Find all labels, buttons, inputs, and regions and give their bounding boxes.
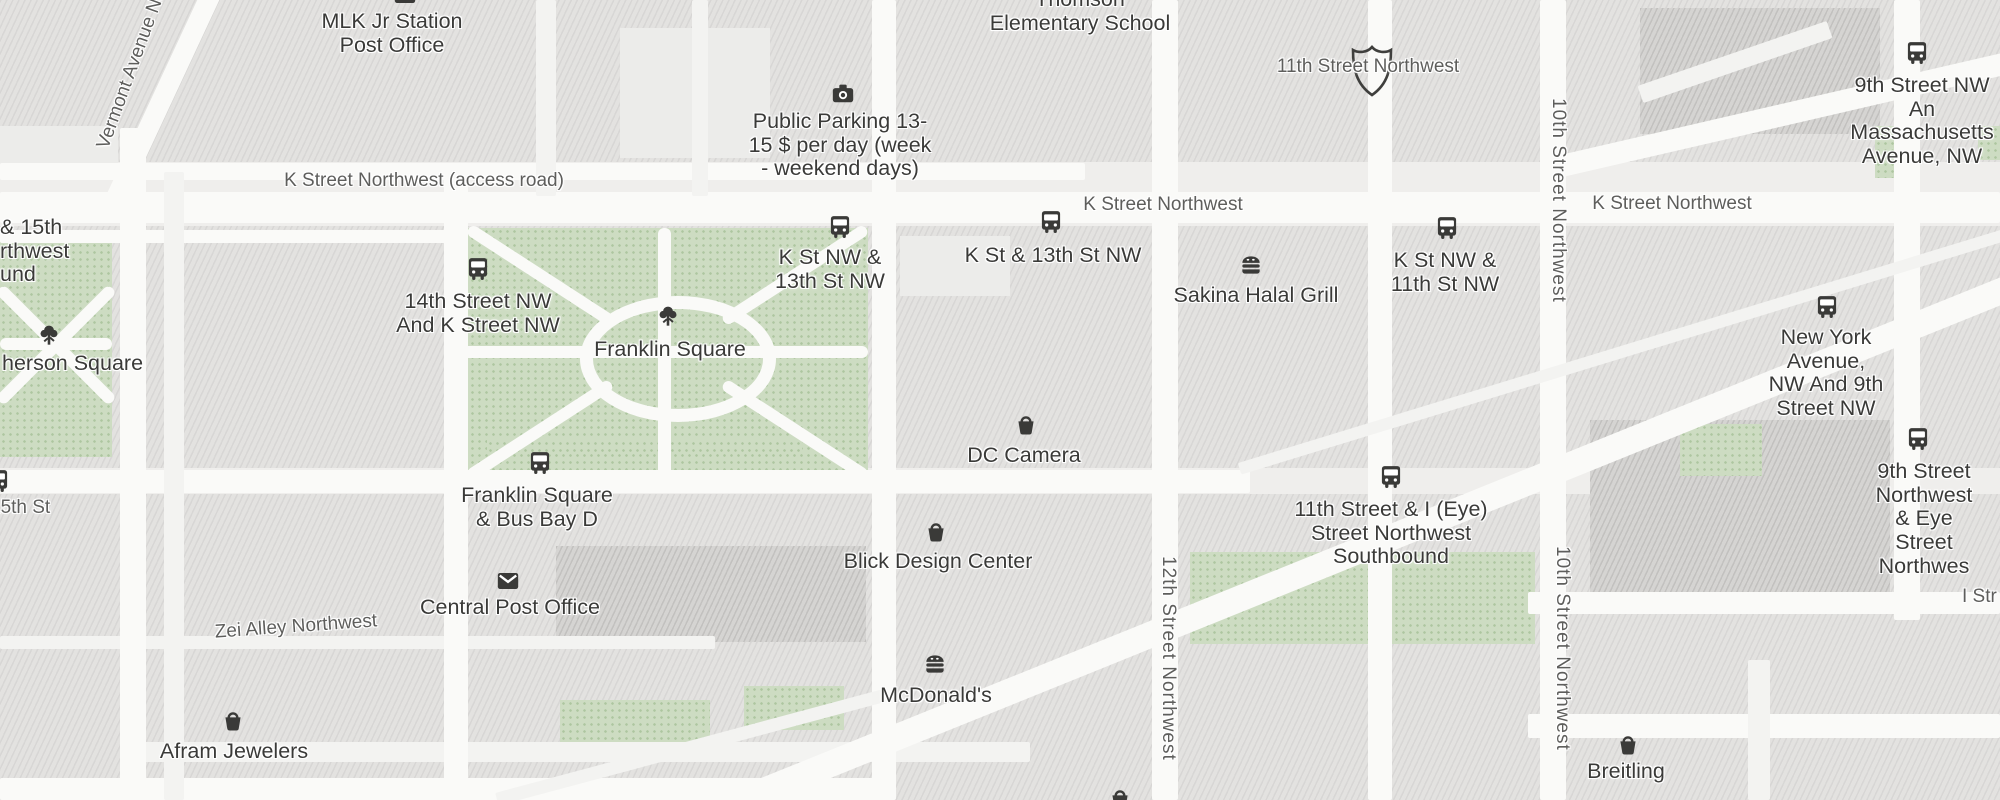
poi-label-14th-and-k-stop[interactable]: 14th Street NW And K Street NW (396, 290, 560, 337)
shopping-bag-icon[interactable] (1013, 412, 1039, 438)
service-road (164, 172, 184, 800)
building-dark-central-post-office (556, 546, 866, 642)
mail-icon[interactable] (495, 568, 521, 594)
poi-label-blick-design-center[interactable]: Blick Design Center (844, 550, 1033, 574)
shopping-bag-icon[interactable] (1107, 786, 1133, 800)
poi-label-9th-eye-stop[interactable]: 9th Street Northwest & Eye Street Northw… (1876, 460, 1973, 578)
poi-label-k-st-11th-stop[interactable]: K St NW & 11th St NW (1391, 249, 1499, 296)
restaurant-icon[interactable] (1238, 252, 1264, 278)
top-road (692, 0, 708, 196)
zei-alley-road (0, 636, 715, 649)
poi-label-k-st-13th-stop[interactable]: K St NW & 13th St NW (775, 246, 885, 293)
shopping-bag-icon[interactable] (220, 708, 246, 734)
poi-label-mcpherson-square[interactable]: herson Square (2, 352, 143, 376)
bus-stop-icon[interactable] (1038, 209, 1064, 235)
shopping-bag-icon[interactable] (923, 519, 949, 545)
street-label-10th-upper: 10th Street Northwest (1547, 98, 1569, 303)
top-road (536, 0, 556, 196)
bus-stop-icon[interactable] (1904, 40, 1930, 66)
poi-label-mcdonalds[interactable]: McDonald's (880, 684, 992, 708)
poi-label-thomson-elementary[interactable]: Thomson Elementary School (990, 0, 1170, 35)
i-street-west-road (0, 470, 1250, 493)
street-label-15th-st: 15th St (0, 497, 50, 519)
poi-label-11th-i-eye-southbound-stop[interactable]: 11th Street & I (Eye) Street Northwest S… (1294, 498, 1487, 569)
poi-label-mlk-post-office[interactable]: MLK Jr Station Post Office (322, 10, 463, 57)
tree-icon[interactable] (36, 323, 62, 349)
bus-stop-icon[interactable] (465, 256, 491, 282)
restaurant-icon[interactable] (922, 651, 948, 677)
shopping-bag-icon[interactable] (1615, 732, 1641, 758)
poi-label-afram-jewelers[interactable]: Afram Jewelers (160, 740, 308, 764)
15th-street-road (120, 128, 146, 800)
bus-stop-icon[interactable] (1434, 215, 1460, 241)
street-label-k-access: K Street Northwest (access road) (284, 170, 564, 192)
side-road (1748, 660, 1770, 800)
poi-label-public-parking[interactable]: Public Parking 13- 15 $ per day (week - … (749, 110, 932, 181)
poi-label-new-york-ave-9th-stop[interactable]: New York Avenue, NW And 9th Street NW (1739, 326, 1913, 421)
green-patch (1680, 424, 1762, 476)
poi-label-franklin-bus-bay-d[interactable]: Franklin Square & Bus Bay D (461, 484, 613, 531)
camera-icon[interactable] (830, 81, 856, 107)
11th-street-road (1368, 0, 1392, 800)
bus-stop-icon[interactable] (1905, 426, 1931, 452)
street-label-10th-lower: 10th Street Northwest (1551, 546, 1573, 751)
poi-label-central-post-office[interactable]: Central Post Office (420, 596, 600, 620)
poi-label-9th-massachusetts-stop[interactable]: 9th Street NW An Massachusetts Avenue, N… (1850, 74, 1993, 169)
street-label-i-street: I Str (1962, 586, 1997, 608)
poi-label-breitling[interactable]: Breitling (1587, 760, 1665, 784)
street-label-k-mid: K Street Northwest (1083, 194, 1242, 216)
street-label-11th: 11th Street Northwest (1277, 56, 1459, 78)
bus-stop-icon[interactable] (1814, 294, 1840, 320)
poi-label-15th-partial[interactable]: & 15th rthwest und (0, 216, 69, 287)
poi-label-sakina-halal-grill[interactable]: Sakina Halal Grill (1174, 284, 1339, 308)
street-label-12th: 12th Street Northwest (1157, 556, 1179, 761)
poi-label-dc-camera[interactable]: DC Camera (967, 444, 1081, 468)
bus-stop-icon[interactable] (527, 450, 553, 476)
poi-label-k-st-and-13th-stop[interactable]: K St & 13th St NW (965, 244, 1142, 268)
bus-stop-icon[interactable] (0, 468, 11, 494)
bus-stop-icon[interactable] (827, 214, 853, 240)
poi-label-franklin-square[interactable]: Franklin Square (594, 338, 746, 362)
map-canvas[interactable]: K Street Northwest (access road) K Stree… (0, 0, 2000, 800)
mail-icon[interactable] (392, 0, 418, 8)
tree-icon[interactable] (655, 304, 681, 330)
bus-stop-icon[interactable] (1378, 464, 1404, 490)
i-street-east-road (1528, 592, 2000, 614)
street-label-k-right: K Street Northwest (1592, 193, 1751, 215)
